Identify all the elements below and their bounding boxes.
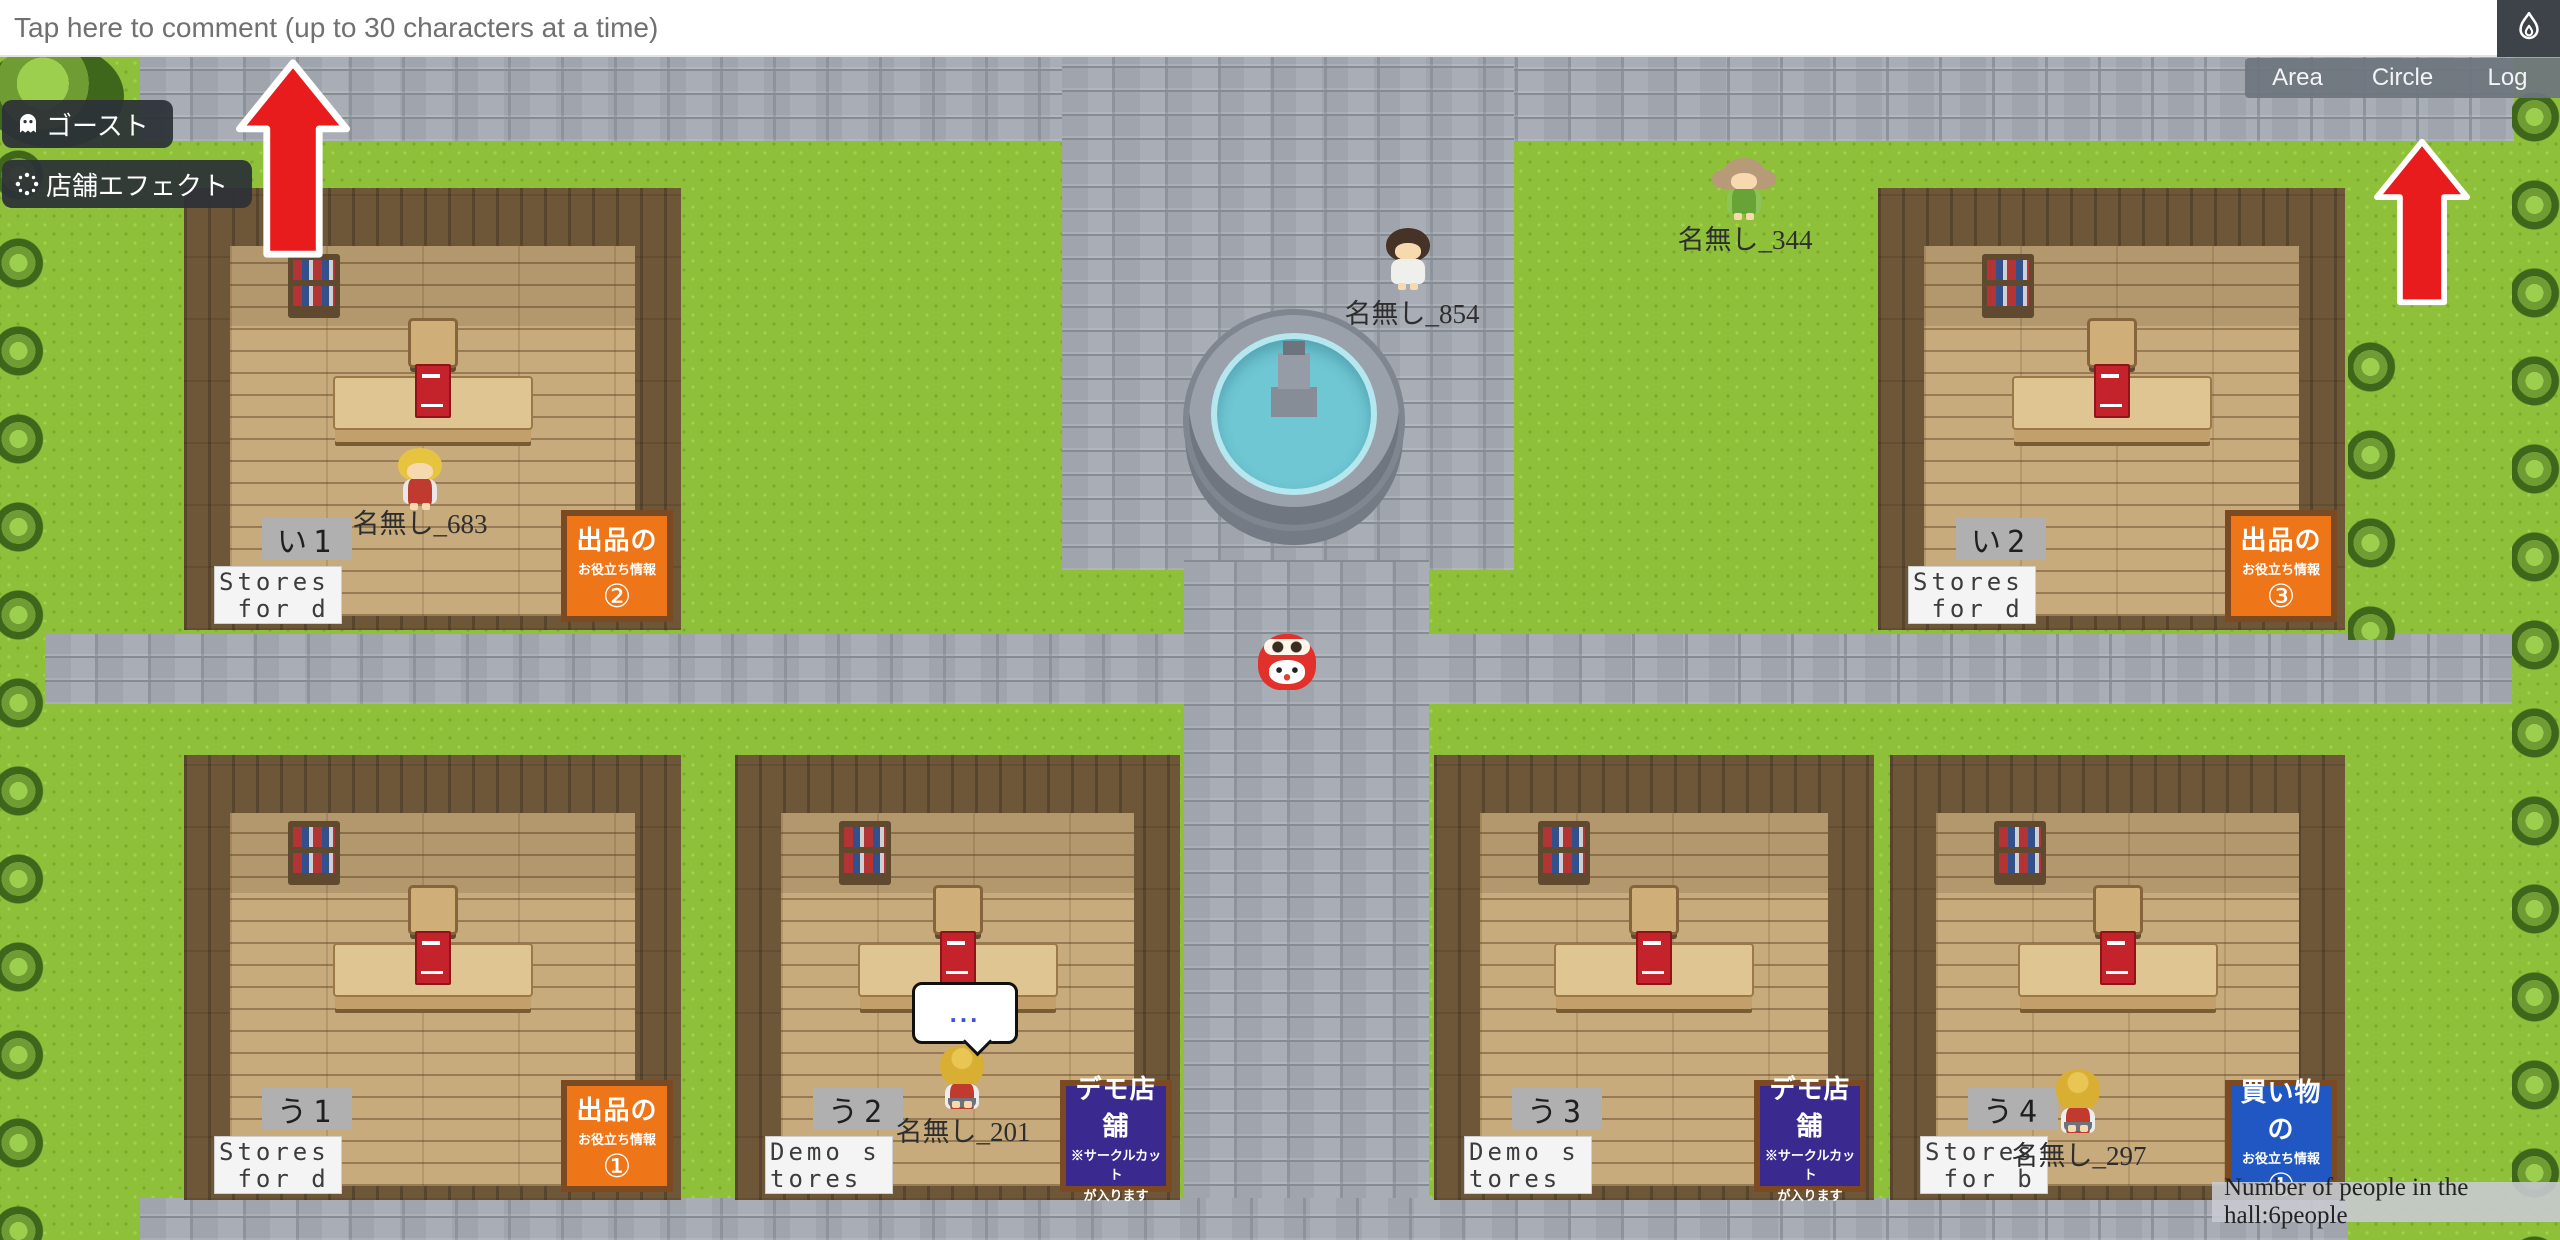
info-sign-subtitle2: が入ります xyxy=(1760,1185,1860,1204)
book-icon xyxy=(415,364,451,418)
shelf-icon xyxy=(288,821,340,885)
hall-count-status: Number of people in the hall:6people xyxy=(2212,1182,2560,1222)
chair-icon xyxy=(1629,885,1679,935)
chair-icon xyxy=(933,885,983,935)
booth-u1[interactable]: う1 Stores for d 出品の お役立ち情報 ① xyxy=(184,755,681,1200)
speech-bubble: ... xyxy=(912,982,1018,1044)
info-sign-number: ① xyxy=(567,1150,667,1182)
sprite-feet xyxy=(2068,1125,2076,1132)
chair-icon xyxy=(2093,885,2143,935)
info-sign-title: 出品の xyxy=(2231,520,2331,557)
sprite-face xyxy=(407,463,433,480)
shelf-icon xyxy=(288,254,340,318)
player-sprite[interactable] xyxy=(1384,228,1432,290)
bush-column-right xyxy=(2512,80,2560,1240)
store-name-sign: Stores for d xyxy=(1908,566,2036,624)
info-sign-subtitle2: が入ります xyxy=(1066,1185,1166,1204)
sprite-hair xyxy=(2056,1070,2100,1112)
info-sign-title: 出品の xyxy=(567,1090,667,1127)
up-arrow-icon xyxy=(2374,136,2470,308)
sprite-feet xyxy=(952,1101,960,1108)
table-counter xyxy=(1554,943,1754,997)
table-counter xyxy=(333,943,533,997)
info-sign-number: ③ xyxy=(2231,580,2331,612)
booth-plate: う4 xyxy=(1968,1088,2058,1130)
table-counter xyxy=(2012,376,2212,430)
sprite-face xyxy=(1395,243,1421,260)
sprite-body xyxy=(1727,189,1761,214)
booth-plate: う3 xyxy=(1512,1088,1602,1130)
info-sign[interactable]: 出品の お役立ち情報 ① xyxy=(561,1080,673,1192)
book-icon xyxy=(940,931,976,985)
player-sprite[interactable] xyxy=(2054,1070,2102,1132)
info-sign-subtitle: ※サークルカット xyxy=(1066,1145,1166,1183)
info-sign[interactable]: デモ店舗 ※サークルカット が入ります xyxy=(1754,1080,1866,1192)
ghost-button[interactable]: ゴースト xyxy=(2,100,173,148)
flame-icon xyxy=(2510,10,2548,48)
info-sign-title: デモ店舗 xyxy=(1760,1069,1860,1143)
shelf-icon xyxy=(1994,821,2046,885)
book-icon xyxy=(1636,931,1672,985)
map[interactable]: い1 Stores for d 出品の お役立ち情報 ② い2 Stores f… xyxy=(0,0,2560,1240)
mascot-sprite[interactable] xyxy=(1260,634,1314,690)
sprite-body xyxy=(1391,259,1425,284)
booth-u3[interactable]: う3 Demo s tores デモ店舗 ※サークルカット が入ります xyxy=(1434,755,1874,1200)
ghost-button-label: ゴースト xyxy=(46,106,149,143)
sparkle-dots-icon xyxy=(14,171,40,197)
fountain xyxy=(1183,309,1405,531)
player-sprite[interactable] xyxy=(938,1046,986,1108)
player-nametag: 名無し_297 xyxy=(1969,1134,2189,1173)
info-sign-subtitle: お役立ち情報 xyxy=(2231,1148,2331,1167)
player-sprite[interactable] xyxy=(1720,158,1768,220)
book-icon xyxy=(415,931,451,985)
store-name-sign: Demo s tores xyxy=(1464,1136,1592,1194)
speech-bubble-text: ... xyxy=(950,998,981,1029)
player-sprite[interactable] xyxy=(396,448,444,510)
app-window: い1 Stores for d 出品の お役立ち情報 ② い2 Stores f… xyxy=(0,0,2560,1240)
comment-input[interactable] xyxy=(0,0,2497,55)
shelf-icon xyxy=(839,821,891,885)
sprite-face xyxy=(1731,173,1757,190)
info-sign-number: ② xyxy=(567,580,667,612)
tab-log[interactable]: Log xyxy=(2455,58,2560,98)
info-sign-subtitle: お役立ち情報 xyxy=(567,1129,667,1148)
info-sign-title: デモ店舗 xyxy=(1066,1069,1166,1143)
shelf-icon xyxy=(1538,821,1590,885)
booth-plate: う1 xyxy=(262,1088,352,1130)
chair-icon xyxy=(408,885,458,935)
shop-effects-button-label: 店舗エフェクト xyxy=(46,166,228,203)
road-bottom xyxy=(140,1198,2348,1240)
ghost-icon xyxy=(16,112,40,136)
comment-bar xyxy=(0,0,2497,57)
player-nametag: 名無し_683 xyxy=(310,502,530,541)
table-counter xyxy=(333,376,533,430)
info-sign-subtitle: ※サークルカット xyxy=(1760,1145,1860,1183)
book-icon xyxy=(2094,364,2130,418)
info-sign[interactable]: 出品の お役立ち情報 ② xyxy=(561,510,673,622)
view-tabbar: Area Circle Log xyxy=(2245,58,2560,98)
player-nametag: 名無し_344 xyxy=(1635,218,1855,257)
player-nametag: 名無し_201 xyxy=(853,1110,1073,1149)
info-sign-title: 出品の xyxy=(567,520,667,557)
table-counter xyxy=(2018,943,2218,997)
booth-plate: い2 xyxy=(1956,518,2046,560)
tab-circle[interactable]: Circle xyxy=(2350,58,2455,98)
fountain-pedestal xyxy=(1271,341,1317,417)
sprite-feet xyxy=(1398,283,1406,290)
info-sign-subtitle: お役立ち情報 xyxy=(2231,559,2331,578)
hall-count-text: Number of people in the hall:6people xyxy=(2224,1174,2560,1230)
sprite-body xyxy=(403,479,437,504)
chair-icon xyxy=(2087,318,2137,368)
info-sign[interactable]: 出品の お役立ち情報 ③ xyxy=(2225,510,2337,622)
mascot-goggles xyxy=(1264,639,1310,655)
booth-i2[interactable]: い2 Stores for d 出品の お役立ち情報 ③ xyxy=(1878,188,2345,630)
info-sign-subtitle: お役立ち情報 xyxy=(567,559,667,578)
store-name-sign: Stores for d xyxy=(214,566,342,624)
bush-column-inner xyxy=(2348,330,2396,640)
store-name-sign: Stores for d xyxy=(214,1136,342,1194)
chair-icon xyxy=(408,318,458,368)
info-sign[interactable]: デモ店舗 ※サークルカット が入ります xyxy=(1060,1080,1172,1192)
info-sign-title: 買い物の xyxy=(2231,1072,2331,1146)
shop-effects-button[interactable]: 店舗エフェクト xyxy=(2,160,252,208)
tab-area[interactable]: Area xyxy=(2245,58,2350,98)
mascot-face xyxy=(1269,660,1305,684)
book-icon xyxy=(2100,931,2136,985)
shelf-icon xyxy=(1982,254,2034,318)
flame-button[interactable] xyxy=(2497,0,2560,57)
player-nametag: 名無し_854 xyxy=(1302,292,1522,331)
bush-column-left xyxy=(0,50,46,1240)
up-arrow-icon xyxy=(236,56,350,261)
